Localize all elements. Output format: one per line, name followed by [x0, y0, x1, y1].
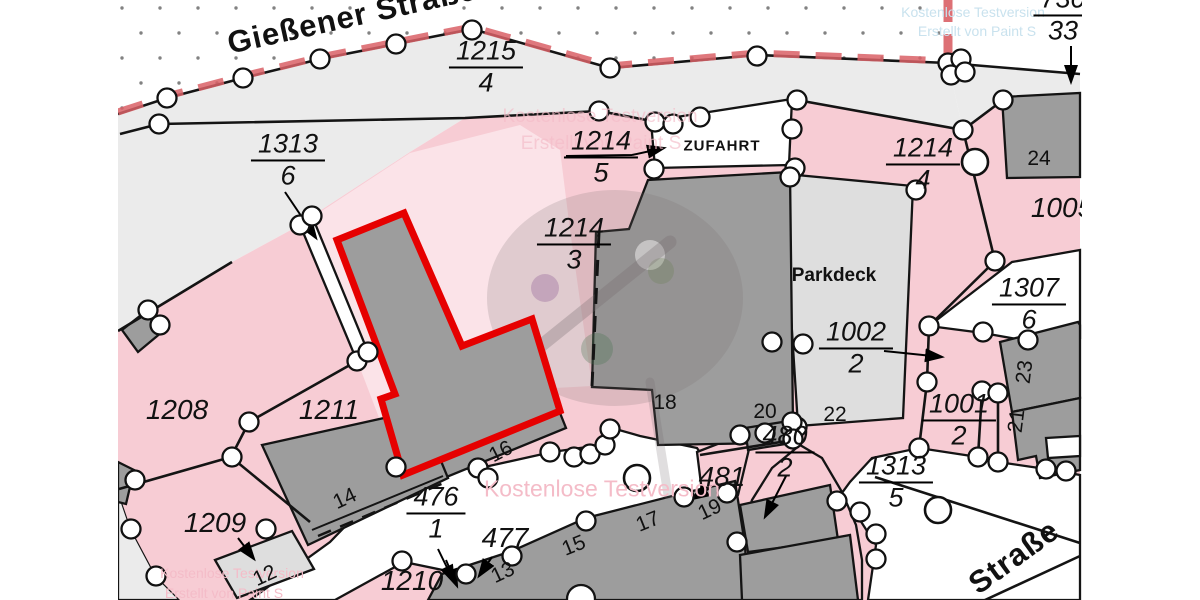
parcel-label-1214-5: 12145 [564, 127, 638, 186]
parcel-numerator: 480 [755, 422, 814, 450]
parcel-denominator: 3 [566, 246, 581, 274]
parcel-label-480-2: 4802 [755, 422, 814, 481]
watermark-creator-top: Erstellt von Paint S [918, 23, 1036, 39]
parcel-denominator: 2 [951, 422, 966, 450]
parcel-denominator: 5 [593, 159, 608, 187]
parcel-label-1307-6: 13076 [992, 274, 1066, 333]
parcel-label-477: 477 [482, 522, 529, 554]
parcel-label-1210: 1210 [381, 565, 443, 597]
parcel-numerator: 1307 [992, 274, 1066, 302]
parcel-denominator: 6 [280, 162, 295, 190]
parcel-denominator: 5 [888, 484, 903, 512]
parcel-label-1002-2: 10022 [819, 318, 893, 377]
parcel-denominator: 4 [478, 69, 493, 97]
parcel-denominator: 4 [915, 166, 930, 194]
building-number-24: 24 [1027, 147, 1050, 171]
parkdeck-sign: Parkdeck [792, 265, 877, 287]
parcel-label-1215-4: 12154 [449, 37, 523, 96]
parcel-label-1209: 1209 [184, 507, 246, 539]
parcel-numerator: 1215 [449, 37, 523, 65]
parcel-denominator: 1 [428, 515, 443, 543]
building-21-notch [1046, 436, 1080, 458]
parcel-label-476-1: 4761 [406, 483, 465, 542]
parcel-numerator: 1214 [564, 127, 638, 155]
parcel-numerator: 1002 [819, 318, 893, 346]
parcel-label-1001-2: 10012 [922, 390, 996, 449]
parcel-label-1208: 1208 [146, 394, 208, 426]
parcel-label-1214-4: 12144 [886, 134, 960, 193]
building-number-20: 20 [753, 400, 776, 424]
watermark-trial-top: Kostenlose Testversion [901, 4, 1045, 20]
parcel-label-1214-3: 12143 [537, 214, 611, 273]
parcel-numerator: 476 [406, 483, 465, 511]
parcel-numerator: 1313 [251, 130, 325, 158]
parcel-numerator: 1214 [537, 214, 611, 242]
parcel-denominator: 33 [1048, 17, 1078, 45]
parcel-label-481: 481 [699, 461, 746, 493]
building-number-18: 18 [653, 391, 676, 415]
parcel-denominator: 6 [1021, 306, 1036, 334]
parcel-label-1211: 1211 [299, 394, 359, 426]
cadastral-map-view[interactable]: Kostenlose Testversion Erstellt von Pain… [0, 0, 1200, 600]
parcel-label-1313-6: 13136 [251, 130, 325, 189]
parcel-label-1313-5: 13135 [859, 452, 933, 511]
parcel-numerator: 1313 [859, 452, 933, 480]
building-number-22: 22 [823, 403, 846, 427]
map-margin-left [0, 0, 118, 600]
building-number-21: 21 [1004, 408, 1031, 434]
zufahrt-sign: ZUFAHRT [684, 138, 761, 155]
parcel-denominator: 2 [777, 454, 792, 482]
parcel-numerator: 1214 [886, 134, 960, 162]
parcel-numerator: 1001 [922, 390, 996, 418]
watermark-trial-bottom-left: Kostenlose Testversion [160, 565, 304, 581]
light-structures [786, 174, 913, 426]
parcel-denominator: 2 [848, 350, 863, 378]
map-margin-right [1082, 0, 1200, 600]
building-number-23: 23 [1012, 359, 1039, 385]
parkdeck-area [786, 174, 913, 426]
watermark-trial-bottom: Kostenlose Testversion [484, 476, 720, 503]
